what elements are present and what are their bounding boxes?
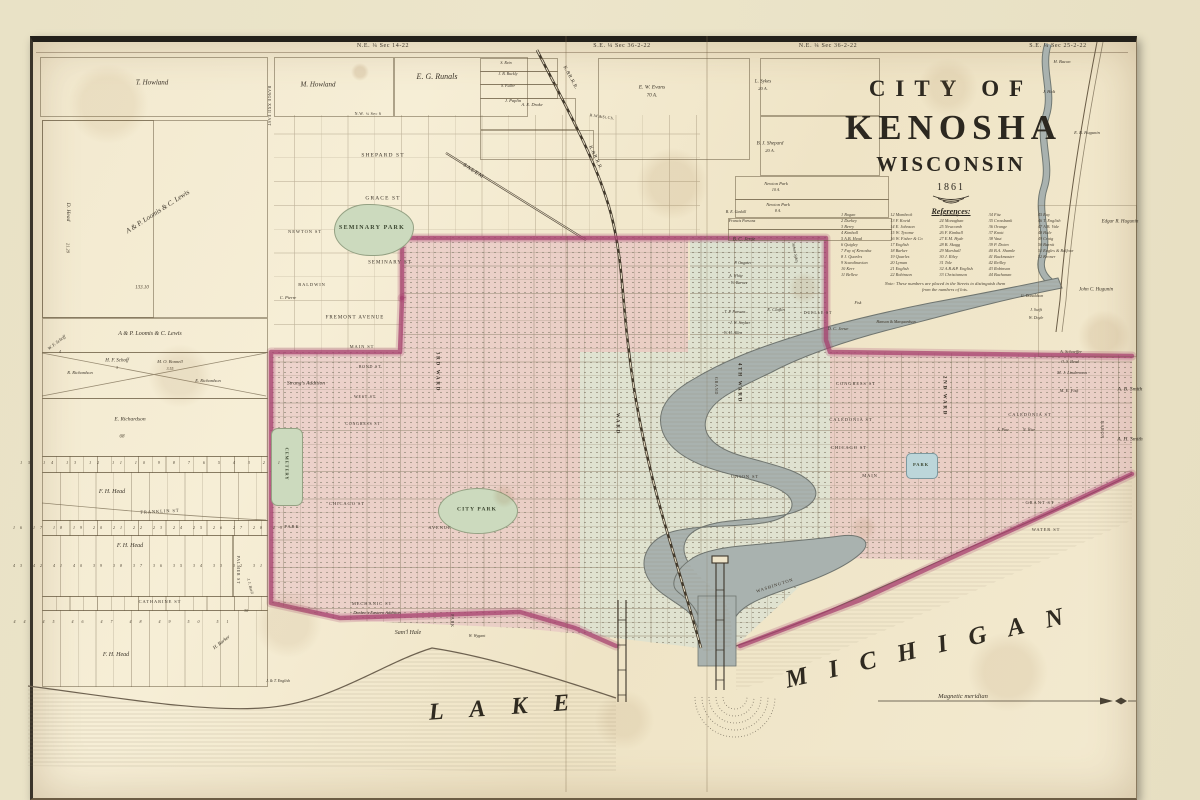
map-label: Strang's Addition xyxy=(287,381,325,387)
map-label: F. H. Head xyxy=(99,489,125,495)
parcel-outline xyxy=(480,58,558,72)
map-label: J. Swift xyxy=(1030,308,1042,312)
parcel-outline xyxy=(480,84,558,99)
map-label: AVENUE xyxy=(428,526,451,531)
map-label: T. P. Parsons xyxy=(725,310,746,314)
map-label: 3 xyxy=(116,366,118,370)
map-label: F. H. Head xyxy=(117,543,143,549)
map-label: D. C. Jerue xyxy=(828,327,849,332)
map-label: W. Barnes xyxy=(731,281,747,285)
map-label: B. C. Jerue xyxy=(733,238,756,243)
map-label: PARK xyxy=(450,614,454,628)
map-label: GRANT ST xyxy=(1026,501,1055,506)
map-label: A. Pine xyxy=(997,428,1009,432)
map-label: E. Claflin xyxy=(767,308,785,313)
map-label: PARK xyxy=(284,525,299,530)
map-label: CONGRESS ST xyxy=(345,422,380,426)
map-label: 20 A. xyxy=(765,149,774,154)
map-label: J. B. Buckly xyxy=(498,72,517,76)
map-label: 68 xyxy=(120,435,125,440)
map-label: Hanson & Marquardson xyxy=(876,320,915,324)
map-label: 30 xyxy=(244,609,248,613)
references-column: 12 Mombeck13 F. Kovid14 E. Johnson15 W. … xyxy=(890,212,933,278)
parcel-outline xyxy=(42,352,268,399)
parcel-outline xyxy=(480,71,558,85)
reference-entry: 52 Kroner xyxy=(1038,254,1081,260)
map-label: CONGRESS ST xyxy=(836,382,876,387)
map-label: 10 A. xyxy=(772,188,780,192)
map-label: GRAND xyxy=(714,377,718,395)
map-label: A & P. Loomis & C. Lewis xyxy=(118,331,181,337)
map-label: N.E. ¼ Sec 36-2-22 xyxy=(799,43,857,49)
map-label: NEWTON ST xyxy=(288,230,322,235)
map-label: G. Donaldson xyxy=(1021,294,1043,298)
map-label: E. G. Runals xyxy=(417,73,458,81)
map-label: 15 14 13 12 11 10 9 8 7 6 5 4 3 2 1 xyxy=(20,461,286,465)
title-block: CITY OF KENOSHA WISCONSIN 1861 Reference… xyxy=(845,76,1057,216)
map-label: WARD xyxy=(615,413,620,435)
title-kenosha: KENOSHA xyxy=(845,108,1057,148)
map-label: 3.55 xyxy=(167,367,174,371)
title-city-of: CITY OF xyxy=(845,76,1057,102)
map-label: R. Richardson xyxy=(67,371,93,376)
map-label: CATHARINE ST xyxy=(139,600,182,605)
map-label: Newton Park xyxy=(764,182,788,187)
map-label: BARON xyxy=(1100,421,1104,439)
map-label: FREMONT AVENUE xyxy=(326,316,385,321)
map-label: CEMETERY xyxy=(284,447,289,480)
section-rule xyxy=(36,52,1128,53)
map-label: 4TH WARD xyxy=(737,363,742,403)
references-column: 1 Bogan2 Durkey3 Berry4 Kimball5 A.B. He… xyxy=(841,212,884,278)
map-label: Fisk xyxy=(855,301,862,305)
map-label: E. W. Evans xyxy=(639,85,665,91)
reference-entry: 33 Christianson xyxy=(939,272,982,278)
map-label: P. Gagnier xyxy=(734,261,751,265)
map-label: Sam'l Hale xyxy=(395,630,421,636)
map-label: E. Richardson xyxy=(114,417,145,423)
map-label: 133.10 xyxy=(135,286,149,291)
map-label: J. & T. English xyxy=(266,679,290,683)
map-label: J. W. Stryker xyxy=(730,321,750,325)
map-label: F. H. Head xyxy=(103,652,129,658)
map-label: W. Wygant xyxy=(469,634,486,638)
map-label: J. Paplin xyxy=(505,99,521,104)
map-label: Francis Parsons xyxy=(729,219,756,223)
map-label: RANGE XXII EAST xyxy=(267,86,271,126)
map-label: 21.29 xyxy=(65,243,70,253)
map-label: M. J. Linderman xyxy=(1057,371,1087,376)
map-label: CALEDONIA ST xyxy=(829,418,872,423)
map-label: A. Schaeffer xyxy=(1060,350,1082,355)
map-label: W. H. Allen xyxy=(724,331,742,335)
references-column: 45 Ray46 T. English47 A.B. Vale48 Hale49… xyxy=(1038,212,1081,278)
map-label: A. H. Smith xyxy=(1117,437,1142,443)
map-label: E. B. Hugunin xyxy=(1074,131,1100,136)
map-label: Edgar R. Hugunin xyxy=(1102,220,1139,225)
map-label: SHEPARD ST xyxy=(361,153,404,159)
references-list: 1 Bogan2 Durkey3 Berry4 Kimball5 A.B. He… xyxy=(841,212,1081,278)
map-label: CHICAGO ST xyxy=(329,502,365,507)
map-label: UNION ST xyxy=(731,475,759,480)
map-label: 2ND WARD xyxy=(942,376,947,416)
parcel-outline xyxy=(598,58,750,160)
map-label: N.W. ¼ Sec 6 xyxy=(355,112,382,116)
map-label: B. J. Shepard xyxy=(757,142,784,147)
title-year: 1861 xyxy=(845,182,1057,193)
references-column: 23 Whitney24 Monaghan25 Newcomb26 F. Kim… xyxy=(939,212,982,278)
map-label: 44 45 46 47 48 49 50 51 xyxy=(14,620,237,624)
map-label: S. Fuller xyxy=(501,84,515,88)
reference-entry: 11 Bellew xyxy=(841,272,884,278)
map-label: MAIN xyxy=(862,474,878,479)
map-label: W. Doyle xyxy=(1029,316,1044,320)
map-label: Newton Park xyxy=(766,203,790,208)
map-label: CITY PARK xyxy=(457,507,497,513)
reference-entry: 44 Buchanan xyxy=(989,272,1032,278)
map-label: CHICAGO ST xyxy=(831,446,867,451)
parcel-outline xyxy=(40,57,268,117)
map-label: S.E. ¼ Sec 25-2-22 xyxy=(1029,43,1086,49)
parcel-outline xyxy=(480,130,594,160)
map-label: PARK xyxy=(913,463,929,468)
map-label: N. Wier xyxy=(1023,428,1035,432)
map-label: GRACE ST xyxy=(365,196,400,202)
map-photo: N.E. ¼ Sec 14-22S.E. ¼ Sec 36-2-22N.E. ¼… xyxy=(0,0,1200,800)
map-label: MECHANIC ST xyxy=(352,602,392,607)
map-label: A. E. Drake xyxy=(521,103,542,108)
title-flourish-icon xyxy=(929,194,973,204)
map-label: PALMER ST xyxy=(236,556,240,585)
map-label: A. White xyxy=(729,274,743,278)
map-label: WEST ST xyxy=(354,395,376,399)
map-label: N.E. ¼ Sec 14-22 xyxy=(357,43,409,49)
map-label: S. Rein xyxy=(500,61,511,65)
title-wisconsin: WISCONSIN xyxy=(845,152,1057,177)
references-column: 34 Fitz35 Crossbank36 Orange37 Knott38 V… xyxy=(989,212,1032,278)
map-label: S.E. ¼ Sec 36-2-22 xyxy=(593,43,650,49)
map-label: SEMINARY ST xyxy=(368,261,412,266)
references-note: Note: These numbers are placed in the St… xyxy=(880,281,1010,293)
map-label: M. Howland xyxy=(301,82,336,89)
map-label: A. B. Smith xyxy=(1118,387,1143,393)
map-label: DUELLE ST xyxy=(804,311,832,315)
map-label: M. E. Fisk xyxy=(1060,389,1079,394)
map-label: WATER ST xyxy=(1032,528,1061,533)
map-label: BALDWIN xyxy=(298,283,326,288)
map-label: 4 xyxy=(59,350,61,354)
map-label: L. Sykes xyxy=(755,80,771,85)
map-label: H. F. Schoff xyxy=(105,359,129,364)
map-label: E. Richardson xyxy=(195,379,221,384)
map-label: CALEDONIA ST xyxy=(1008,413,1051,418)
map-label: 20 A. xyxy=(758,87,767,92)
map-label: T. Howland xyxy=(136,80,169,87)
map-label: BOND ST xyxy=(359,365,382,369)
map-label: SEMINARY PARK xyxy=(339,225,405,231)
map-label: M. O. Bonnell xyxy=(157,360,183,365)
map-label: MAIN ST xyxy=(350,345,375,350)
map-label: C. Pierre xyxy=(280,296,297,301)
map-label: 8 A. xyxy=(775,209,781,213)
map-label: 43 42 41 40 39 38 37 36 35 34 33 32 31 xyxy=(13,564,267,568)
map-label: 70 A. xyxy=(647,94,657,99)
map-label: Magnetic meridian xyxy=(938,694,988,701)
map-label: 16 17 18 19 20 21 22 23 24 25 26 27 28 2… xyxy=(13,526,287,530)
map-label: O. S. Head xyxy=(1061,360,1079,364)
map-label: D. Head xyxy=(64,203,70,222)
map-label: John C. Hugunin xyxy=(1079,288,1113,293)
map-label: H. Bacon xyxy=(1054,60,1071,65)
map-label: Durkee's Eastern Addition xyxy=(353,611,401,616)
map-label: 3RD WARD xyxy=(435,352,440,392)
map-label: B. E. Gaskill xyxy=(726,210,746,214)
parcel-outline xyxy=(42,398,268,457)
reference-entry: 22 Robinson xyxy=(890,272,933,278)
